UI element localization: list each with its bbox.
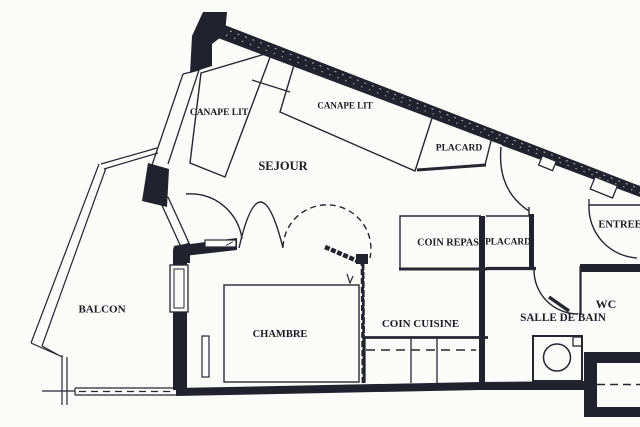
svg-text:PLACARD: PLACARD bbox=[436, 144, 483, 154]
svg-text:WC: WC bbox=[596, 297, 617, 311]
svg-text:COIN CUISINE: COIN CUISINE bbox=[382, 318, 459, 330]
svg-text:COIN REPAS: COIN REPAS bbox=[417, 238, 479, 249]
svg-text:SEJOUR: SEJOUR bbox=[258, 159, 308, 173]
svg-text:ENTREE: ENTREE bbox=[598, 220, 640, 231]
svg-text:BALCON: BALCON bbox=[78, 304, 125, 316]
svg-text:CHAMBRE: CHAMBRE bbox=[253, 329, 308, 340]
svg-text:CANAPE LIT: CANAPE LIT bbox=[190, 108, 249, 118]
svg-text:PLACARD: PLACARD bbox=[485, 238, 531, 248]
svg-text:SALLE DE BAIN: SALLE DE BAIN bbox=[520, 312, 606, 324]
svg-text:CANAPE LIT: CANAPE LIT bbox=[317, 101, 372, 111]
